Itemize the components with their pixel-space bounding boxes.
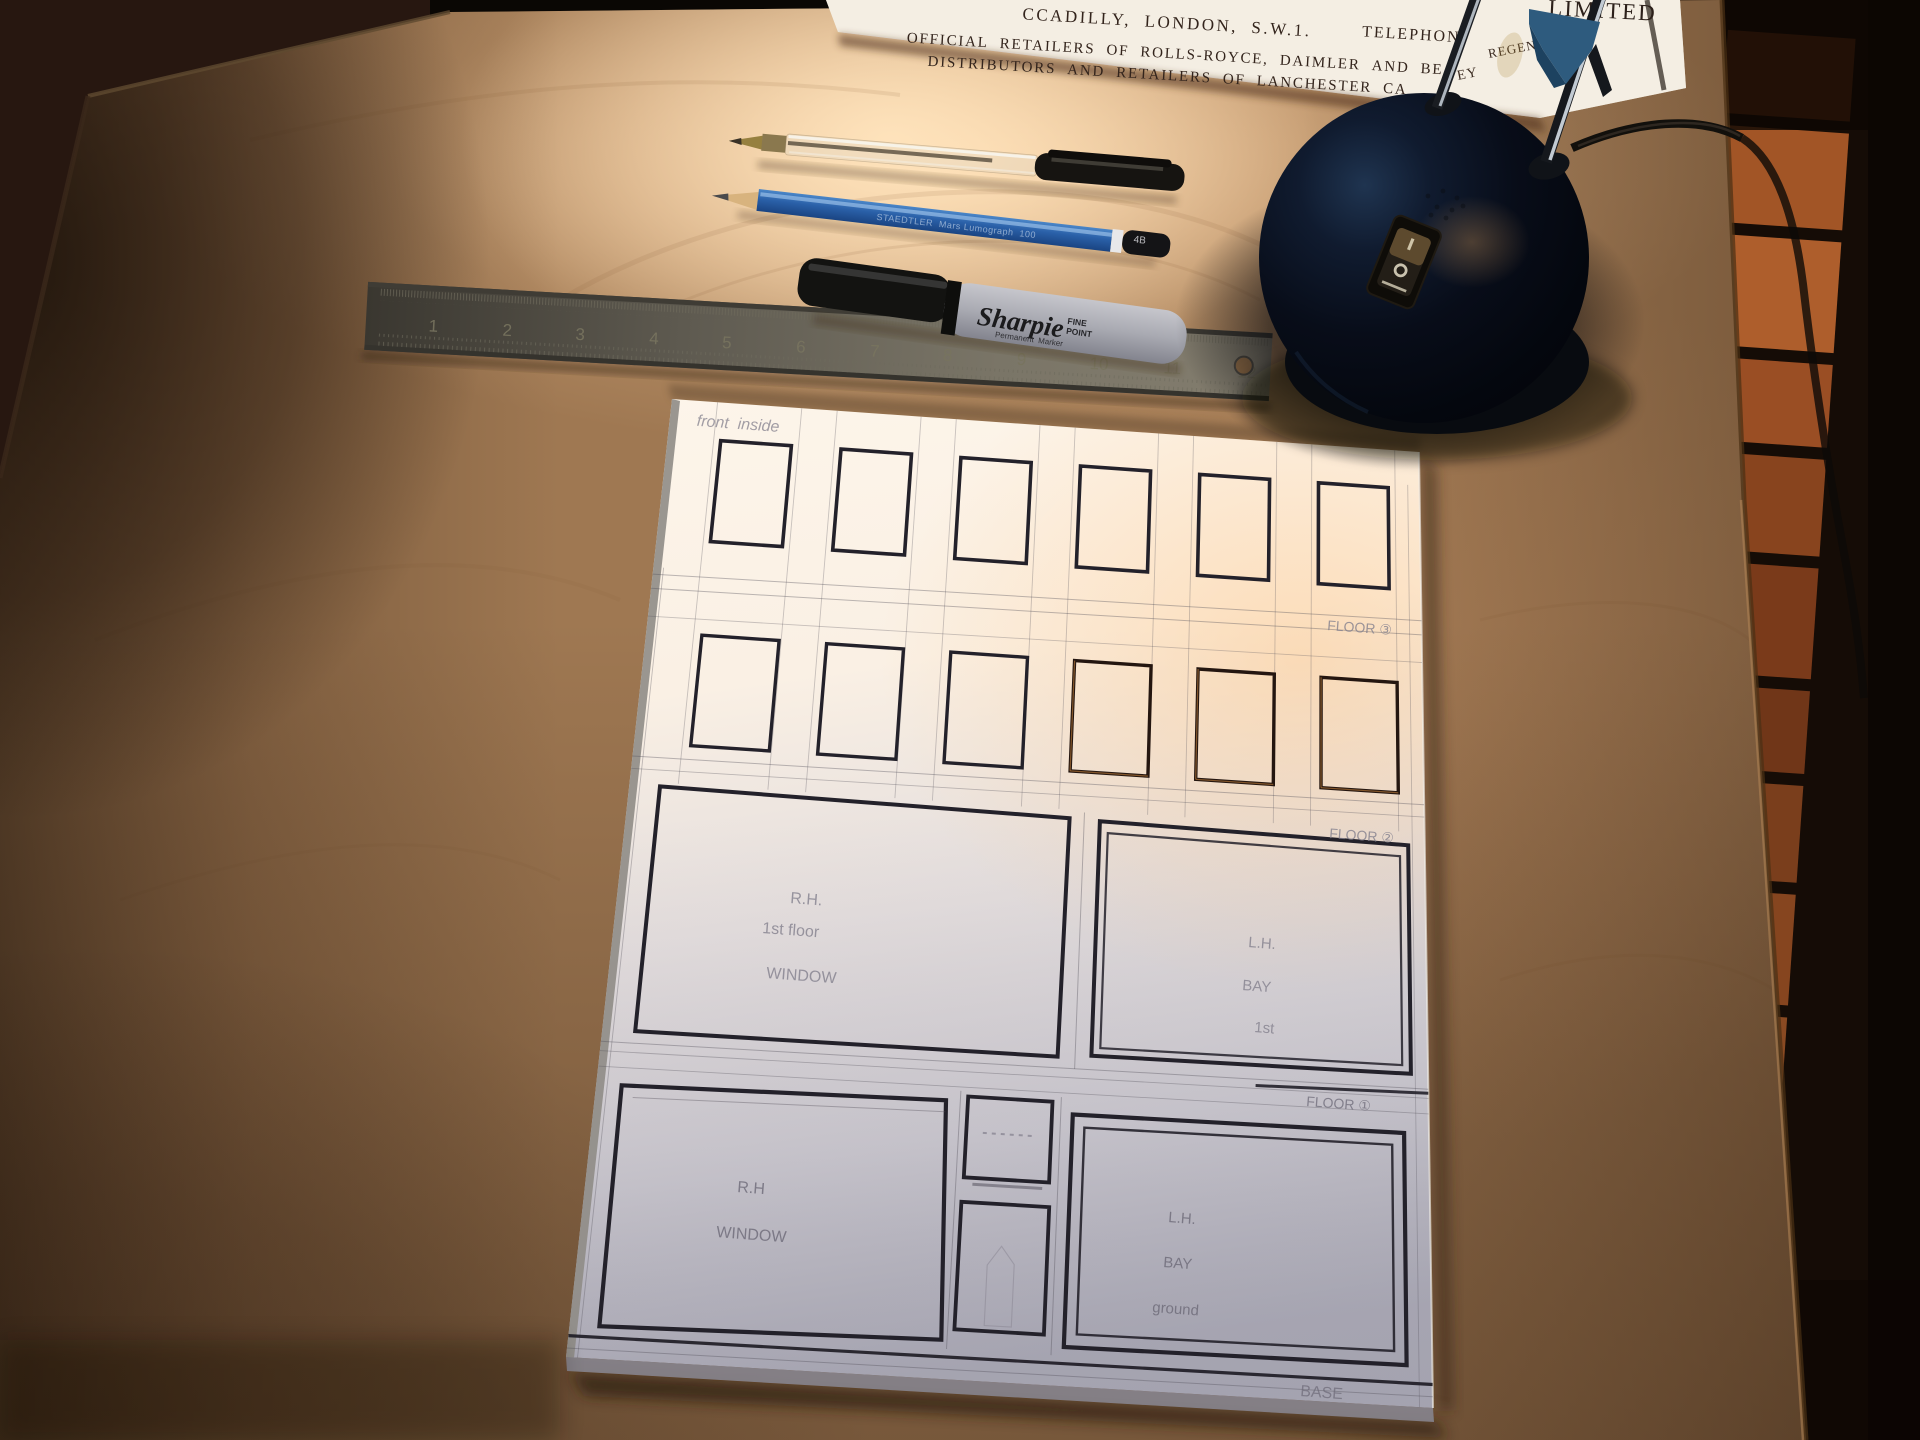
svg-text:R.H.: R.H. (790, 890, 823, 909)
svg-text:5: 5 (722, 333, 733, 353)
svg-text:1st: 1st (1254, 1019, 1276, 1038)
svg-text:7: 7 (869, 341, 880, 361)
svg-text:BASE: BASE (1300, 1383, 1344, 1403)
svg-text:8: 8 (942, 346, 953, 366)
svg-text:3: 3 (575, 325, 586, 345)
svg-text:ground: ground (1152, 1299, 1200, 1319)
svg-text:L.H.: L.H. (1248, 934, 1277, 953)
svg-text:4B: 4B (1133, 234, 1147, 246)
svg-text:L.H.: L.H. (1168, 1209, 1197, 1228)
svg-text:6: 6 (796, 337, 807, 357)
svg-text:BAY: BAY (1242, 977, 1272, 996)
svg-text:R.H: R.H (737, 1179, 766, 1198)
svg-text:1: 1 (428, 316, 439, 336)
svg-text:4: 4 (649, 329, 660, 349)
svg-text:BAY: BAY (1163, 1254, 1193, 1273)
svg-text:2: 2 (502, 321, 513, 341)
